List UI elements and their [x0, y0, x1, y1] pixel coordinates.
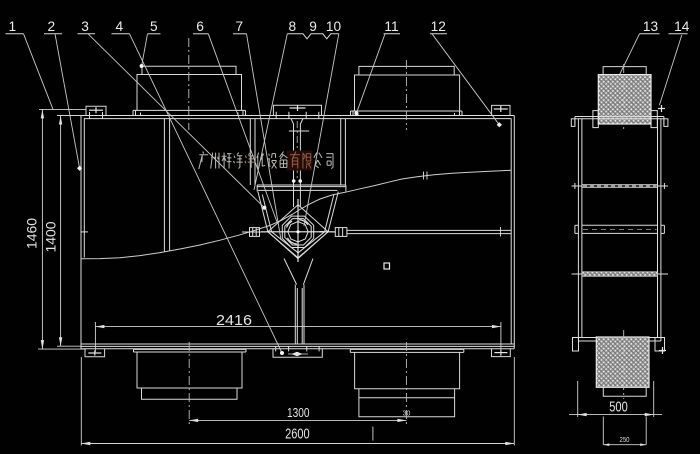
svg-text:2: 2: [47, 19, 55, 34]
svg-text:3: 3: [81, 19, 89, 34]
svg-text:30: 30: [403, 411, 411, 418]
svg-text:4: 4: [115, 19, 123, 34]
svg-text:1400: 1400: [44, 222, 59, 253]
svg-text:12: 12: [431, 19, 446, 34]
svg-text:8: 8: [288, 19, 296, 34]
svg-text:1: 1: [8, 19, 16, 34]
svg-text:5: 5: [150, 19, 158, 34]
svg-text:6: 6: [196, 19, 204, 34]
svg-text:1300: 1300: [287, 405, 310, 420]
svg-text:9: 9: [309, 19, 317, 34]
svg-text:13: 13: [643, 19, 659, 34]
svg-text:10: 10: [326, 19, 342, 34]
svg-text:11: 11: [384, 19, 398, 34]
svg-text:250: 250: [620, 437, 630, 444]
svg-text:2416: 2416: [216, 312, 252, 329]
svg-text:500: 500: [609, 399, 628, 416]
svg-text:2600: 2600: [285, 427, 310, 443]
svg-text:1460: 1460: [25, 218, 40, 249]
svg-text:14: 14: [674, 19, 690, 34]
svg-text:7: 7: [235, 19, 243, 34]
